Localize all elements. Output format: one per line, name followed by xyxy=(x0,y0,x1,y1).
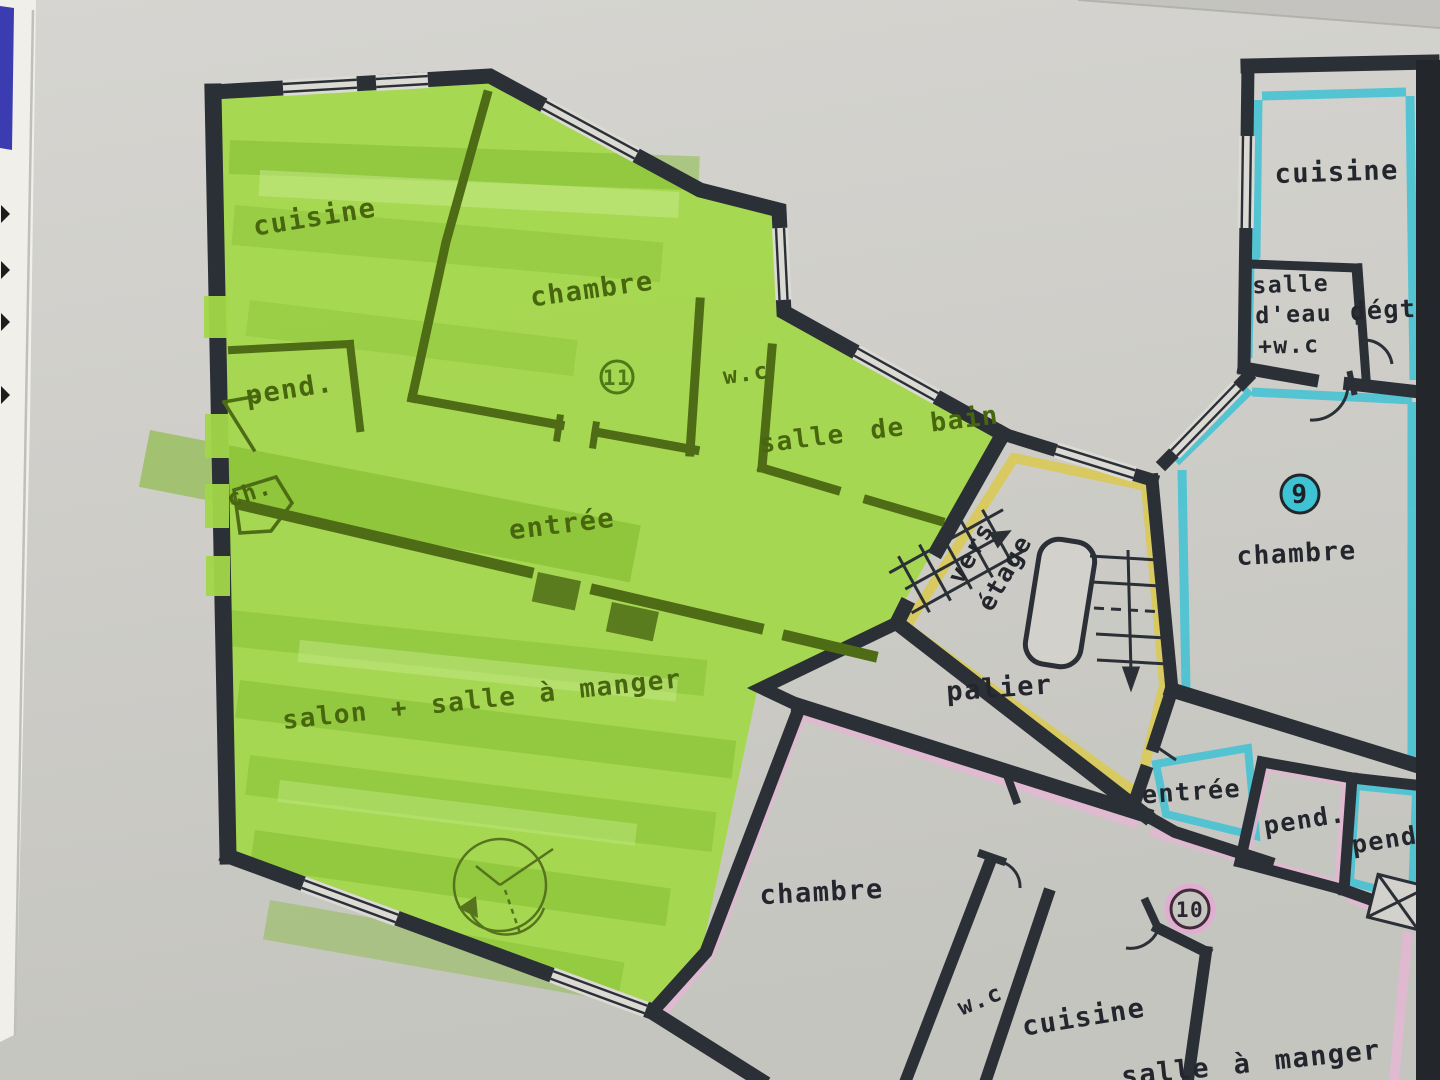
label-chambre-9: chambre xyxy=(1236,536,1357,572)
label-degt-9: dégt. xyxy=(1349,293,1433,326)
label-cuisine-9: cuisine xyxy=(1274,155,1399,190)
unit-10-number: 10 xyxy=(1176,898,1204,922)
plan-right-edge-wall xyxy=(1416,60,1440,1080)
window xyxy=(376,72,429,91)
unit-11-number: 11 xyxy=(603,366,631,390)
label-chambre-10: chambre xyxy=(759,874,885,911)
unit-9-number: 9 xyxy=(1291,480,1308,510)
blue-marker xyxy=(0,6,14,150)
floor-plan: 11 9 10 cuisine chambre w.c salle de bai… xyxy=(0,0,1440,1080)
label-salle-deau-3: +w.c xyxy=(1258,332,1320,360)
label-salle-deau-2: d'eau xyxy=(1255,301,1333,330)
window xyxy=(1238,136,1255,228)
screen-photo: 11 9 10 cuisine chambre w.c salle de bai… xyxy=(0,0,1440,1080)
label-salle-deau-1: salle xyxy=(1252,271,1330,300)
